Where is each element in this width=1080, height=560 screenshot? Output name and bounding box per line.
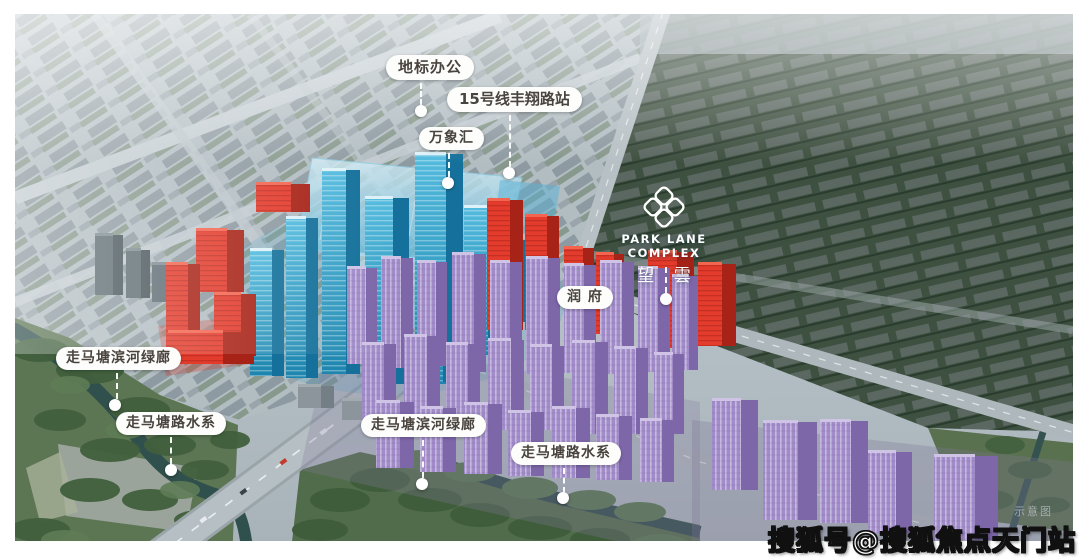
callout-dot-waterway-center xyxy=(557,492,569,504)
leader-line-waterway-left xyxy=(170,437,172,464)
project-logo: PARK LANE COMPLEX 望 雲 xyxy=(584,184,744,286)
callout-dot-green-corridor-center xyxy=(416,478,428,490)
callout-runfu: 润 府 xyxy=(557,286,613,309)
leader-line-line15-station xyxy=(509,115,511,167)
logo-brand-text: PARK LANE COMPLEX xyxy=(584,232,744,260)
callout-dot-waterway-left xyxy=(165,464,177,476)
haze-left xyxy=(15,14,395,354)
callout-dot-line15-station xyxy=(503,167,515,179)
callout-dot-landmark-office xyxy=(415,105,427,117)
callout-wanxianghui: 万象汇 xyxy=(419,127,484,150)
leader-line-wanxianghui xyxy=(448,153,450,177)
leader-line-landmark-office xyxy=(420,83,422,105)
disclaimer-note: 示意图 xyxy=(1014,503,1053,519)
leader-line-waterway-center xyxy=(563,468,565,493)
callout-dot-wanxianghui xyxy=(442,177,454,189)
logo-project-name: 望 雲 xyxy=(584,261,744,286)
callout-landmark-office: 地标办公 xyxy=(386,55,474,80)
callout-dot-green-corridor-left xyxy=(109,399,121,411)
aerial-site-rendering: 地标办公 15号线丰翔路站 万象汇 润 府 走马塘滨河绿廊 走马塘路水系 走马塘… xyxy=(0,0,1080,560)
watermark: 搜狐号@搜狐焦点天门站 xyxy=(768,519,1076,558)
callout-line15-station: 15号线丰翔路站 xyxy=(447,87,582,112)
callout-green-corridor-left: 走马塘滨河绿廊 xyxy=(56,347,181,370)
callout-waterway-center: 走马塘路水系 xyxy=(511,442,621,465)
leader-line-green-corridor-left xyxy=(116,373,118,399)
callout-dot-logo xyxy=(660,293,672,305)
logo-knot-icon xyxy=(641,184,687,230)
callout-waterway-left: 走马塘路水系 xyxy=(116,412,226,435)
callout-green-corridor-center: 走马塘滨河绿廊 xyxy=(361,414,486,437)
leader-line-green-corridor-center xyxy=(422,440,424,478)
